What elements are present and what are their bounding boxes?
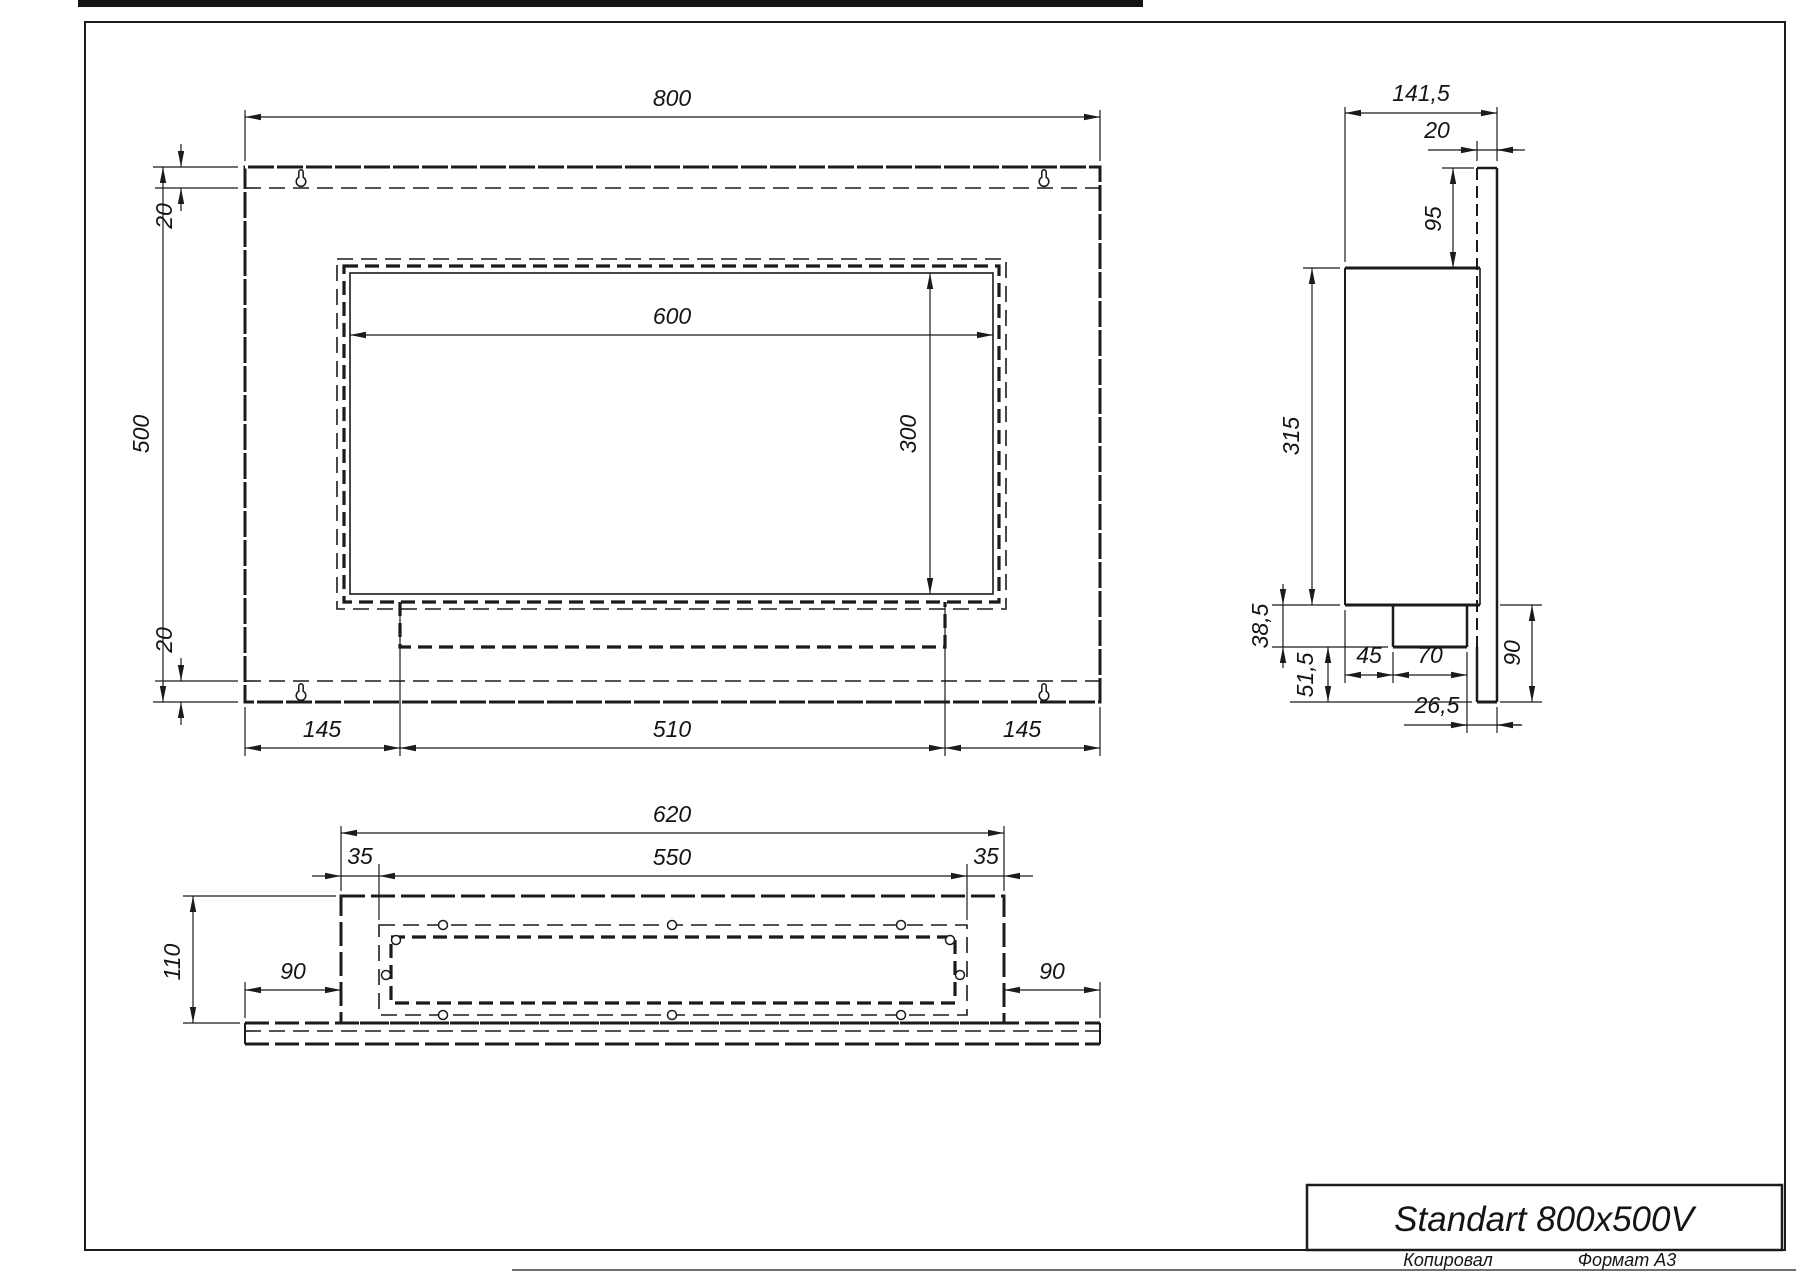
dim-label: 145 xyxy=(303,716,342,742)
drawing-title: Standart 800x500V xyxy=(1394,1200,1697,1239)
dim-plate-thickness: 20 xyxy=(1423,117,1525,161)
dim-label: 35 xyxy=(973,843,999,869)
keyhole-icon xyxy=(1039,170,1049,187)
mounting-hole-icon xyxy=(439,1011,448,1020)
mounting-hole-icon xyxy=(897,1011,906,1020)
dim-side-depth: 141,5 xyxy=(1345,80,1497,262)
dim-label: 90 xyxy=(280,958,306,984)
mounting-hole-icon xyxy=(946,936,955,945)
dim-label: 90 xyxy=(1039,958,1065,984)
dim-label: 141,5 xyxy=(1392,80,1450,106)
dim-lower-height: 90 xyxy=(1499,605,1542,702)
title-block: Standart 800x500V Копировал Формат А3 xyxy=(512,1185,1796,1270)
format-label: Формат А3 xyxy=(1578,1250,1677,1270)
front-view: 800 500 20 20 600 xyxy=(128,85,1100,756)
keyhole-icon xyxy=(296,684,306,701)
dim-front-bottom-offset: 20 xyxy=(151,627,238,725)
dim-label: 45 xyxy=(1356,642,1382,668)
keyhole-icon xyxy=(1039,684,1049,701)
dim-opening-height: 300 xyxy=(895,273,930,594)
mounting-hole-icon xyxy=(439,921,448,930)
dim-label: 550 xyxy=(653,844,692,870)
dim-bottom-inner-chain: 35 550 35 xyxy=(312,843,1033,920)
dim-label: 20 xyxy=(151,203,177,230)
sheet-border xyxy=(85,22,1785,1250)
dim-top-inset: 95 xyxy=(1420,168,1474,268)
dim-label: 315 xyxy=(1278,417,1304,456)
dim-label: 95 xyxy=(1420,206,1446,232)
dim-label: 20 xyxy=(151,627,177,654)
dim-opening-width: 600 xyxy=(350,303,993,335)
mounting-hole-icon xyxy=(668,1011,677,1020)
dim-label: 20 xyxy=(1423,117,1450,143)
technical-drawing: 800 500 20 20 600 xyxy=(0,0,1800,1273)
sheet-top-edge xyxy=(78,0,1143,7)
bottom-view: 620 35 550 35 110 90 xyxy=(159,801,1100,1044)
dim-label: 90 xyxy=(1499,640,1525,666)
dim-label: 500 xyxy=(128,415,154,454)
dim-back-gap: 26,5 xyxy=(1404,692,1522,733)
dim-body-height: 315 xyxy=(1272,268,1340,605)
dim-front-height: 500 xyxy=(128,167,238,702)
keyhole-icon xyxy=(296,170,306,187)
drawing-sheet: 800 500 20 20 600 xyxy=(0,0,1800,1273)
dim-label: 35 xyxy=(347,843,373,869)
bottom-glass-frame-hidden xyxy=(391,937,955,1003)
side-view: 141,5 20 95 315 38,5 xyxy=(1247,80,1542,733)
dim-label: 145 xyxy=(1003,716,1042,742)
dim-label: 110 xyxy=(159,943,185,980)
copied-label: Копировал xyxy=(1403,1250,1493,1270)
dim-front-width: 800 xyxy=(245,85,1100,161)
dim-label: 300 xyxy=(895,415,921,454)
front-outline xyxy=(245,167,1100,702)
dim-flange-right: 90 xyxy=(1004,958,1100,1018)
dim-label: 26,5 xyxy=(1414,692,1460,718)
dim-side-tray-width: 70 xyxy=(1393,642,1467,733)
dim-label: 800 xyxy=(653,85,692,111)
dim-front-top-offset: 20 xyxy=(151,144,238,230)
dim-flange-left: 90 xyxy=(245,958,341,1018)
dim-label: 51,5 xyxy=(1292,652,1318,697)
dim-label: 620 xyxy=(653,801,692,827)
mounting-hole-icon xyxy=(956,971,965,980)
mounting-hole-icon xyxy=(897,921,906,930)
dim-bottom-depth: 110 xyxy=(159,896,336,1023)
mounting-hole-icon xyxy=(382,971,391,980)
dim-label: 38,5 xyxy=(1247,603,1273,648)
front-outline-dash-overlay xyxy=(245,167,1100,702)
mounting-hole-icon xyxy=(392,936,401,945)
dim-label: 510 xyxy=(653,716,692,742)
dim-label: 70 xyxy=(1417,642,1443,668)
mounting-hole-icon xyxy=(668,921,677,930)
dim-label: 600 xyxy=(653,303,692,329)
